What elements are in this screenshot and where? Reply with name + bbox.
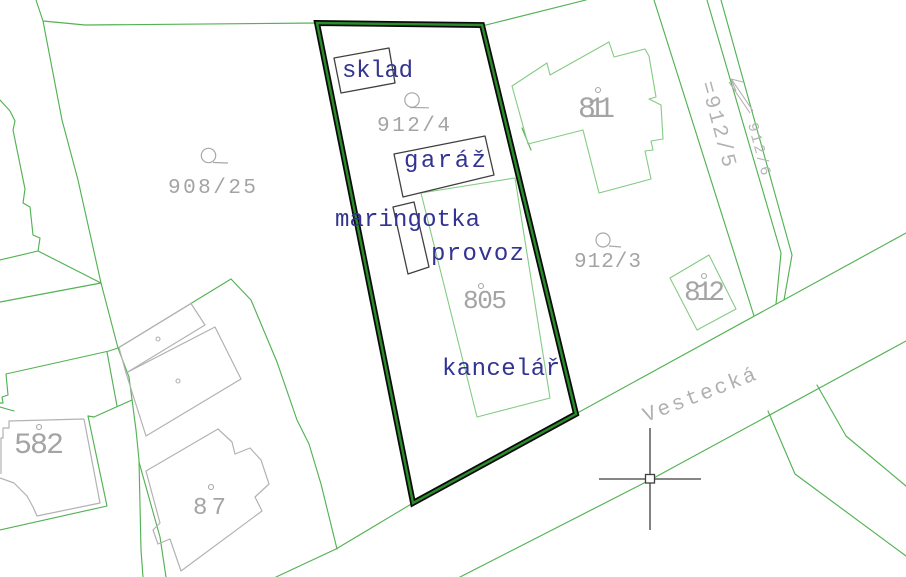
svg-text:912/3: 912/3 (574, 251, 641, 274)
svg-text:sklad: sklad (342, 58, 413, 85)
svg-text:582: 582 (14, 429, 64, 463)
svg-text:maringotka: maringotka (335, 207, 480, 234)
svg-text:811: 811 (578, 93, 615, 127)
svg-text:kancelář: kancelář (442, 356, 560, 383)
svg-text:provoz: provoz (431, 241, 524, 268)
svg-text:812: 812 (684, 278, 725, 309)
svg-text:912/4: 912/4 (377, 115, 450, 138)
svg-text:garáž: garáž (404, 148, 486, 175)
svg-text:805: 805 (463, 286, 507, 316)
